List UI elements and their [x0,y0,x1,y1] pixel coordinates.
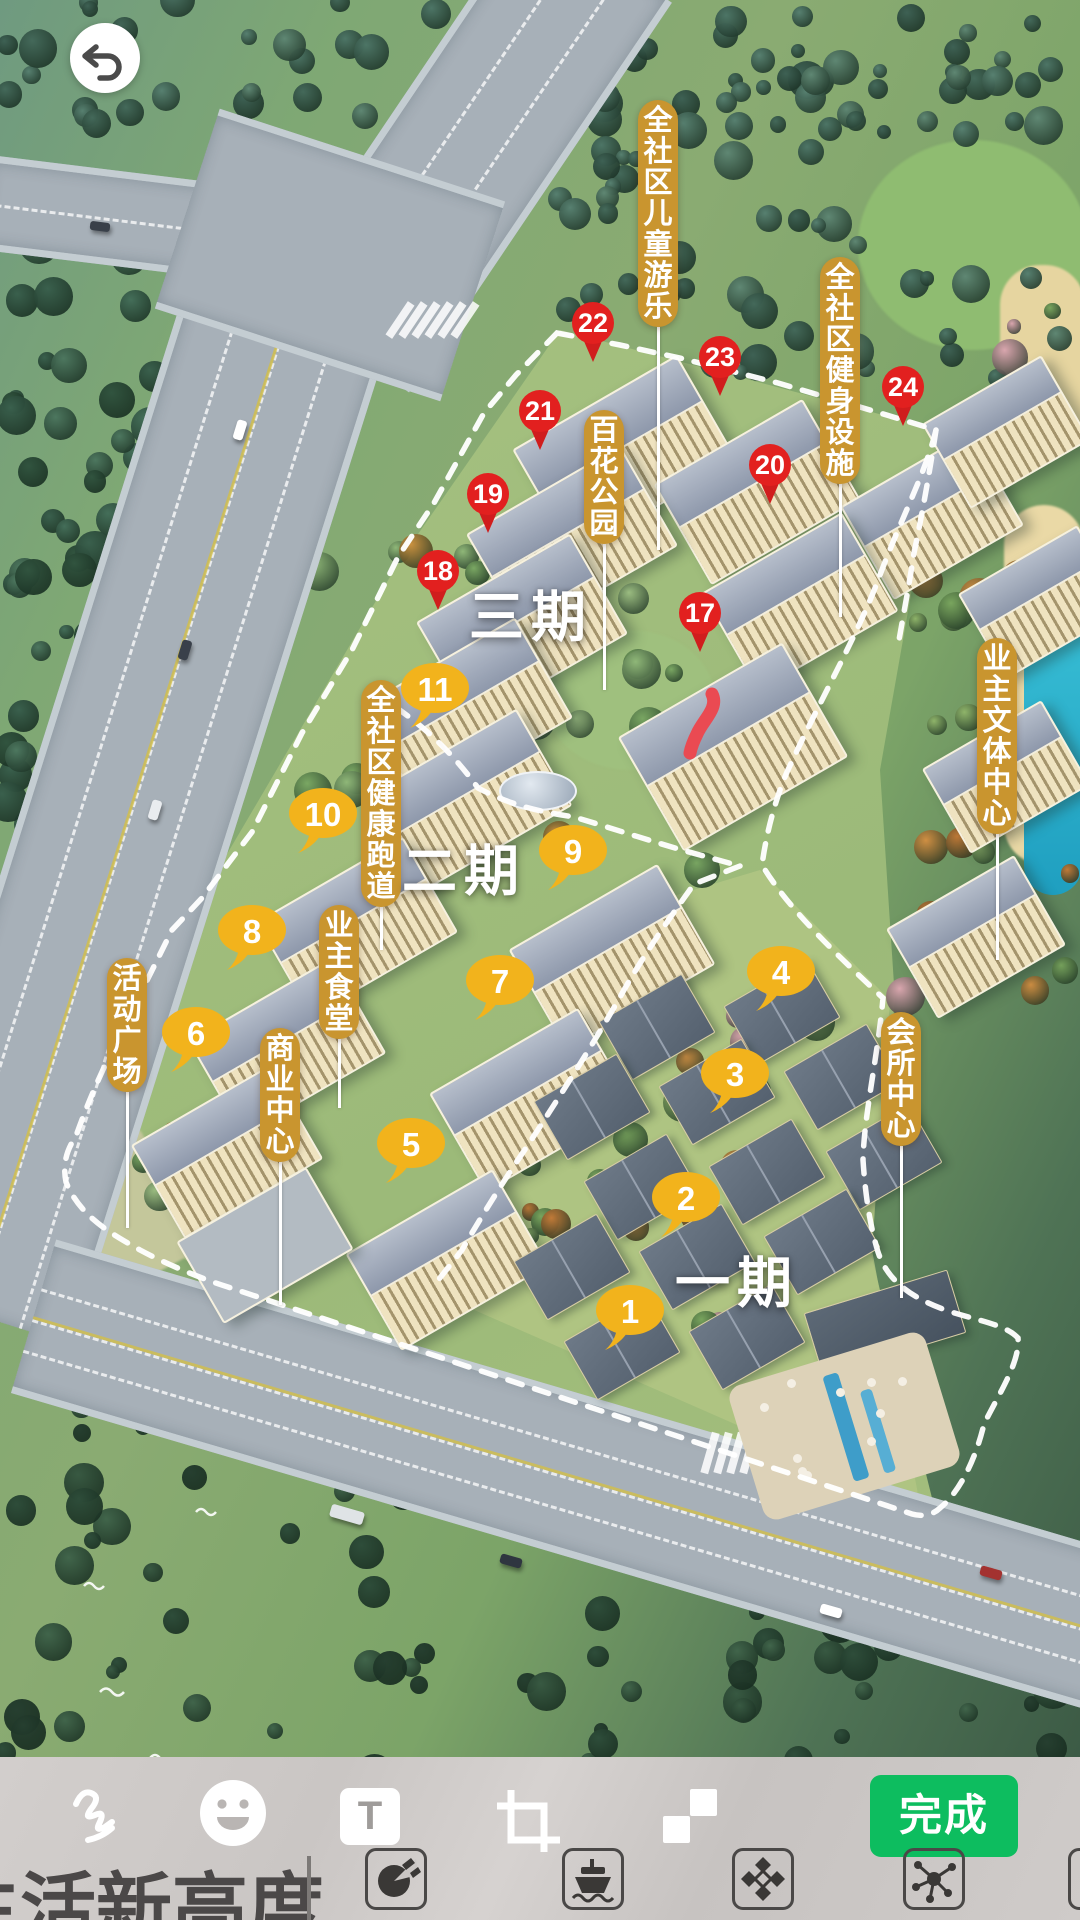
yellow-marker-7: 7 [465,955,535,1021]
site-plan-image [0,0,1080,1920]
red-pin-22: 22 [570,302,616,364]
back-button[interactable] [70,23,140,93]
yellow-marker-10: 10 [288,788,358,854]
checkerboard-icon[interactable] [663,1789,717,1843]
phase-label-一期: 一期 [675,1238,799,1318]
tag-pointer-line [279,1162,282,1305]
yellow-marker-5: 5 [376,1118,446,1184]
tag-pointer-line [338,1039,341,1108]
image-editor-screen: 全社区儿童游乐全社区健身设施百花公园业主文体中心全社区健康跑道业主食堂活动广场商… [0,0,1080,1920]
tag-pointer-line [900,1146,903,1298]
undo-arrow-icon [70,23,140,93]
done-button[interactable]: 完成 [870,1775,1018,1857]
ship-icon [565,1851,621,1907]
tag-pointer-line [126,1092,129,1228]
sticker-partial[interactable] [1068,1848,1080,1910]
smiley-icon[interactable] [200,1780,266,1846]
tray-divider [307,1856,311,1920]
info-tag-全社区健康跑道: 全社区健康跑道 [361,680,401,907]
diamond-pattern-icon [735,1851,791,1907]
red-pin-23: 23 [697,336,743,398]
yellow-marker-3: 3 [700,1048,770,1114]
yellow-marker-9: 9 [538,825,608,891]
palette-icon [368,1851,424,1907]
pen-squiggle-icon[interactable] [60,1782,130,1846]
tag-pointer-line [380,907,383,950]
info-tag-全社区健身设施: 全社区健身设施 [820,257,860,484]
info-tag-活动广场: 活动广场 [107,958,147,1092]
info-tag-业主食堂: 业主食堂 [319,905,359,1039]
yellow-marker-6: 6 [161,1007,231,1073]
tag-pointer-line [996,834,999,960]
sticker-molecule[interactable] [903,1848,965,1910]
watermark-text: 生活新高度 [0,1847,324,1920]
yellow-marker-2: 2 [651,1172,721,1238]
red-pin-21: 21 [517,390,563,452]
sticker-ship[interactable] [562,1848,624,1910]
red-pin-20: 20 [747,444,793,506]
molecule-icon [906,1851,962,1907]
tag-pointer-line [603,544,606,690]
red-pin-19: 19 [465,473,511,535]
sticker-diamond-pattern[interactable] [732,1848,794,1910]
red-pin-18: 18 [415,550,461,612]
letter-t-icon[interactable]: T [340,1788,400,1845]
info-tag-商业中心: 商业中心 [260,1028,300,1162]
tag-pointer-line [657,327,660,550]
info-tag-业主文体中心: 业主文体中心 [977,638,1017,834]
yellow-marker-4: 4 [746,946,816,1012]
info-tag-百花公园: 百花公园 [584,410,624,544]
tag-pointer-line [839,484,842,617]
info-tag-全社区儿童游乐: 全社区儿童游乐 [638,100,678,327]
red-pin-17: 17 [677,592,723,654]
crop-frame-icon[interactable] [488,1786,568,1856]
yellow-marker-8: 8 [217,905,287,971]
text-tool-label: T [358,1794,382,1838]
yellow-marker-11: 11 [400,663,470,729]
red-pin-24: 24 [880,366,926,428]
info-tag-会所中心: 会所中心 [881,1012,921,1146]
yellow-marker-1: 1 [595,1285,665,1351]
phase-label-二期: 二期 [402,826,526,906]
phase-label-三期: 三期 [469,572,593,652]
sticker-palette[interactable] [365,1848,427,1910]
